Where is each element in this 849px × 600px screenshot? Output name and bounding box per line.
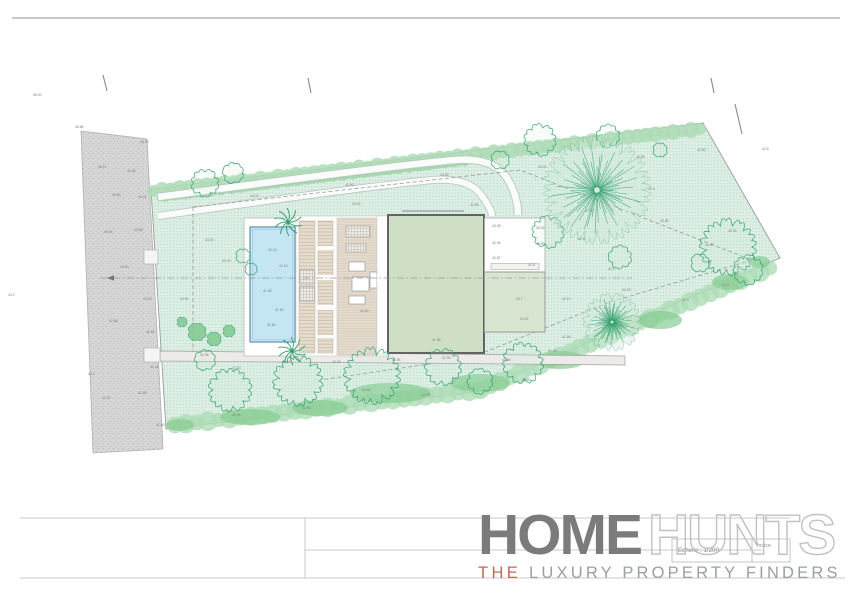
- logo-hunts-text: HUNTS: [648, 503, 834, 567]
- svg-text:44.42: 44.42: [138, 195, 147, 199]
- svg-text:42.90: 42.90: [536, 242, 545, 246]
- svg-text:41.9: 41.9: [682, 298, 689, 302]
- svg-text:43.90: 43.90: [345, 183, 354, 187]
- svg-text:42.7: 42.7: [516, 297, 523, 301]
- road-access-step: [144, 348, 160, 362]
- svg-text:42.55: 42.55: [660, 219, 669, 223]
- svg-text:44.95: 44.95: [127, 169, 136, 173]
- svg-text:41.95: 41.95: [392, 358, 401, 362]
- site-plan-drawing: 45.1044.9545.3044.6044.4244.0543.8843.50…: [0, 0, 849, 600]
- svg-text:43.2: 43.2: [8, 293, 15, 297]
- logo-home-text: HOME: [478, 503, 641, 567]
- svg-text:46.20: 46.20: [33, 93, 42, 97]
- svg-text:43.40: 43.40: [205, 238, 214, 242]
- svg-text:42.95: 42.95: [470, 203, 479, 207]
- dining-table: [346, 226, 370, 237]
- svg-text:43.88: 43.88: [134, 228, 143, 232]
- svg-text:42.87: 42.87: [492, 256, 501, 260]
- svg-text:42.60: 42.60: [360, 309, 369, 313]
- outdoor-table: [300, 287, 315, 301]
- svg-text:42.18: 42.18: [150, 365, 159, 369]
- svg-text:42.96: 42.96: [492, 241, 501, 245]
- deck-margin: [377, 216, 388, 354]
- outdoor-table: [300, 270, 315, 284]
- svg-text:43.55: 43.55: [440, 173, 449, 177]
- svg-text:41.50: 41.50: [302, 406, 311, 410]
- svg-text:44.60: 44.60: [112, 193, 121, 197]
- road-strip: [81, 131, 163, 453]
- svg-text:42.6: 42.6: [762, 147, 769, 151]
- svg-text:43.30: 43.30: [352, 202, 361, 206]
- svg-text:41.55: 41.55: [422, 393, 431, 397]
- svg-text:43.50: 43.50: [120, 265, 129, 269]
- svg-text:43.02: 43.02: [536, 226, 545, 230]
- svg-text:45.10: 45.10: [98, 165, 107, 169]
- svg-text:41.90: 41.90: [275, 308, 284, 312]
- logo-tagline-the: THE: [478, 564, 521, 582]
- svg-text:42.1: 42.1: [88, 372, 95, 376]
- plan-sheet: 45.1044.9545.3044.6044.4244.0543.8843.50…: [0, 0, 849, 600]
- svg-text:41.95: 41.95: [138, 391, 147, 395]
- svg-text:42.20: 42.20: [232, 366, 241, 370]
- svg-text:41.40: 41.40: [522, 378, 531, 382]
- svg-text:41.60: 41.60: [156, 423, 165, 427]
- svg-text:42.15: 42.15: [622, 288, 631, 292]
- svg-text:41.60: 41.60: [362, 388, 371, 392]
- svg-text:42.35: 42.35: [200, 353, 209, 357]
- svg-text:41.45: 41.45: [232, 413, 241, 417]
- svg-text:44.05: 44.05: [104, 230, 113, 234]
- survey-ticks: [103, 75, 742, 134]
- svg-text:42.02: 42.02: [520, 317, 529, 321]
- svg-text:41.90: 41.90: [442, 356, 451, 360]
- svg-text:42.70: 42.70: [585, 209, 594, 213]
- svg-text:41.85: 41.85: [267, 323, 276, 327]
- logo-tagline-rest: LUXURY PROPERTY FINDERS: [529, 564, 841, 582]
- svg-text:42.60: 42.60: [146, 330, 155, 334]
- svg-text:44.20: 44.20: [250, 194, 259, 198]
- svg-text:42.40: 42.40: [705, 243, 714, 247]
- svg-text:42.10: 42.10: [562, 297, 571, 301]
- svg-text:42.02: 42.02: [102, 396, 111, 400]
- svg-text:42.05: 42.05: [332, 360, 341, 364]
- svg-text:42.80: 42.80: [697, 148, 706, 152]
- svg-text:41.75: 41.75: [548, 349, 557, 353]
- svg-text:41.98: 41.98: [432, 338, 441, 342]
- homehunts-logo: HOME HUNTS THE LUXURY PROPERTY FINDERS: [478, 503, 841, 582]
- svg-text:45.30: 45.30: [140, 140, 149, 144]
- svg-text:42.88: 42.88: [109, 319, 118, 323]
- svg-text:42.8: 42.8: [528, 263, 535, 267]
- svg-text:45.86: 45.86: [75, 125, 84, 129]
- svg-text:42.15: 42.15: [268, 248, 277, 252]
- svg-text:43.20: 43.20: [538, 165, 547, 169]
- svg-text:42.95: 42.95: [636, 155, 645, 159]
- pergola-strip: [318, 221, 333, 353]
- svg-text:42.10: 42.10: [282, 360, 291, 364]
- svg-text:41.8: 41.8: [722, 283, 729, 287]
- svg-text:41.95: 41.95: [263, 289, 272, 293]
- svg-text:42.90: 42.90: [180, 297, 189, 301]
- svg-text:42.6: 42.6: [648, 187, 655, 191]
- svg-text:41.85: 41.85: [562, 335, 571, 339]
- svg-text:42.10: 42.10: [279, 264, 288, 268]
- annex-roof: [485, 272, 546, 332]
- road-access-step: [144, 250, 158, 264]
- dining-table: [346, 244, 366, 252]
- svg-text:42.3: 42.3: [608, 267, 615, 271]
- main-building-roof: [388, 215, 484, 353]
- svg-text:43.08: 43.08: [492, 224, 501, 228]
- svg-text:42.35: 42.35: [728, 229, 737, 233]
- svg-text:43.05: 43.05: [143, 297, 152, 301]
- svg-text:42.5: 42.5: [578, 237, 585, 241]
- svg-text:43.15: 43.15: [222, 259, 231, 263]
- svg-text:41.80: 41.80: [502, 358, 511, 362]
